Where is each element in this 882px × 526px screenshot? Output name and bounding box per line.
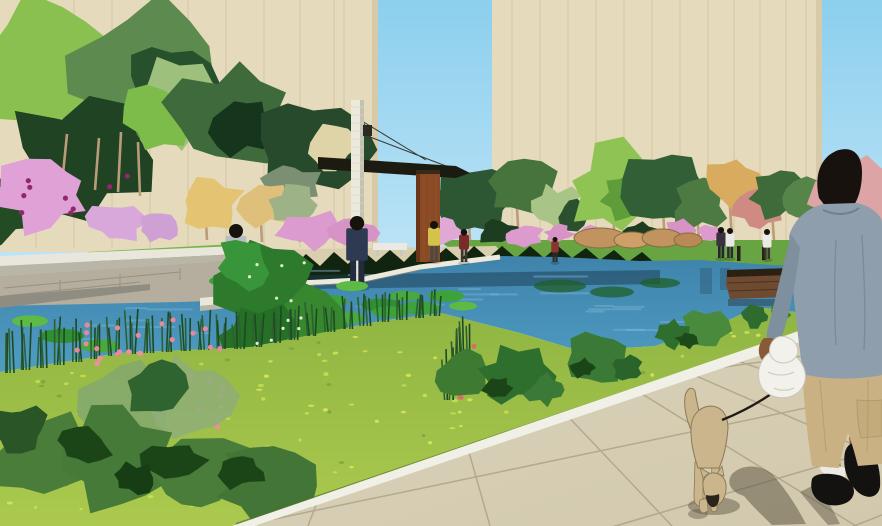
flower-dot: [125, 173, 130, 178]
flower-dot: [472, 344, 477, 349]
reflection-streak: [700, 268, 712, 294]
figure-head: [718, 227, 724, 233]
grass-fleck: [731, 335, 736, 338]
flower-dot: [281, 327, 284, 330]
bench-leg: [376, 250, 379, 256]
flower-dot: [297, 327, 300, 330]
grass-fleck: [268, 360, 273, 362]
grass-fleck: [401, 411, 406, 413]
grass-fleck: [332, 352, 337, 355]
grass-fleck: [70, 372, 74, 374]
grass-fleck: [756, 334, 761, 337]
figure-torso: [346, 228, 368, 260]
figure-shadow: [427, 260, 441, 264]
grass-fleck: [7, 501, 13, 504]
rust-column-shade: [416, 172, 420, 262]
grass-fleck: [256, 389, 262, 391]
flower-dot: [459, 395, 464, 400]
reed-blade: [399, 300, 400, 320]
figure-torso: [716, 232, 725, 246]
reed-blade: [331, 307, 332, 332]
figure-head: [727, 228, 733, 234]
flower-dot: [94, 361, 100, 367]
lilypad-far: [640, 278, 680, 288]
grass-fleck: [326, 383, 331, 386]
reed-blade: [216, 314, 217, 349]
flower-dot: [303, 261, 306, 264]
flower-dot: [280, 264, 283, 267]
grass-fleck: [349, 404, 354, 406]
grass-fleck: [423, 394, 427, 397]
grass-fleck: [35, 380, 40, 383]
grass-fleck: [39, 385, 44, 387]
grass-fleck: [323, 408, 328, 411]
grass-fleck: [80, 375, 86, 378]
flower-dot: [21, 193, 26, 198]
water-highlight: [540, 292, 590, 294]
flower-dot: [94, 346, 99, 351]
grass-fleck: [363, 350, 368, 352]
grass-fleck: [459, 425, 463, 427]
grass-fleck: [458, 411, 462, 414]
flower-dot: [97, 356, 103, 362]
flower-dot: [84, 330, 89, 335]
flower-dot: [117, 349, 122, 354]
water-highlight: [626, 329, 661, 331]
flower-dot: [137, 351, 143, 357]
rust-column-cap: [416, 170, 440, 174]
grass-fleck: [375, 420, 379, 423]
grass-fleck: [433, 357, 437, 360]
grass-fleck: [339, 461, 345, 464]
building-left-edge: [372, 0, 378, 252]
pergola-lamp: [363, 125, 372, 136]
flower-dot: [208, 345, 213, 350]
flower-dot: [75, 347, 80, 352]
grass-fleck: [261, 397, 265, 400]
grass-fleck: [349, 466, 353, 469]
flower-dot: [115, 325, 120, 330]
flower-dot: [26, 178, 31, 183]
reed-blade: [363, 294, 364, 326]
grass-fleck: [397, 351, 402, 353]
grass-fleck: [333, 471, 338, 473]
grass-fleck: [57, 395, 62, 398]
reed-blade: [334, 310, 335, 332]
water-highlight: [490, 293, 518, 295]
man-shirt: [789, 203, 882, 379]
dog-body: [691, 406, 728, 468]
grass-fleck: [299, 438, 302, 441]
grass-fleck: [199, 363, 204, 366]
reed-blade: [253, 314, 254, 347]
grass-fleck: [317, 353, 321, 356]
reed-blade: [276, 313, 277, 343]
flower-dot: [107, 184, 112, 189]
reed-blade: [94, 328, 95, 359]
water-highlight: [585, 311, 604, 313]
grass-fleck: [450, 412, 456, 414]
reed-blade: [291, 309, 292, 340]
grass-fleck: [324, 372, 329, 375]
flower-dot: [19, 210, 24, 215]
reed-blade: [422, 296, 423, 318]
flower-dot: [289, 299, 292, 302]
grass-fleck: [401, 384, 406, 387]
reed-blade: [225, 317, 226, 349]
reed-blade: [46, 330, 47, 368]
flower-dot: [248, 275, 251, 278]
flower-dot: [255, 263, 258, 266]
flower-dot: [203, 326, 208, 331]
grass-fleck: [41, 380, 46, 384]
grass-fleck: [504, 410, 509, 413]
reed-blade: [152, 316, 153, 353]
figure-shadow: [551, 261, 560, 265]
lilypad-far: [590, 287, 634, 298]
grass-fleck: [681, 355, 685, 358]
figure-torso: [551, 241, 559, 252]
figure-shadow: [725, 257, 736, 261]
grass-fleck: [64, 382, 69, 385]
grass-fleck: [79, 508, 82, 510]
lilypad-far: [534, 280, 586, 293]
figure-torso: [428, 228, 440, 246]
water-highlight: [594, 305, 614, 307]
figure-head: [553, 237, 558, 242]
bollard: [737, 246, 741, 261]
figure-head: [764, 229, 770, 235]
flower-dot: [170, 337, 175, 342]
flower-dot: [270, 339, 273, 342]
flower-dot: [126, 349, 132, 355]
rendered-scene: [0, 0, 882, 526]
figure-shadow: [762, 258, 773, 262]
grass-fleck: [317, 341, 321, 344]
flower-dot: [286, 319, 289, 322]
grass-fleck: [258, 384, 264, 387]
flower-dot: [27, 185, 32, 190]
water-highlight: [613, 306, 645, 308]
grass-fleck: [308, 404, 314, 407]
flower-dot: [71, 206, 76, 211]
figure-head: [229, 224, 243, 238]
grass-fleck: [422, 434, 426, 437]
flower-dot: [83, 341, 88, 346]
flower-dot: [85, 322, 90, 327]
lilypad: [12, 315, 48, 327]
reed-blade: [185, 318, 186, 351]
flower-dot: [136, 333, 141, 338]
water-highlight: [533, 275, 588, 277]
grass-fleck: [744, 331, 750, 334]
lilypad: [449, 302, 477, 311]
rock: [674, 233, 702, 247]
reed-blade: [294, 309, 295, 340]
grass-fleck: [289, 347, 295, 350]
flower-dot: [159, 321, 164, 326]
grass-fleck: [147, 495, 153, 498]
grass-fleck: [449, 427, 455, 429]
flower-dot: [170, 317, 175, 322]
figure-torso: [459, 235, 469, 250]
grass-fleck: [264, 374, 269, 377]
grass-fleck: [406, 374, 412, 377]
flower-dot: [63, 196, 68, 201]
water-highlight: [458, 288, 481, 290]
bench-leg: [400, 250, 403, 256]
flower-dot: [275, 297, 278, 300]
reed-blade: [280, 306, 281, 343]
grass-fleck: [305, 412, 310, 415]
flower-dot: [299, 316, 302, 319]
figure-head: [461, 229, 468, 236]
grass-fleck: [428, 441, 432, 444]
figure-torso: [763, 234, 772, 248]
flower-dot: [256, 342, 259, 345]
figure-torso: [726, 233, 735, 247]
grass-fleck: [467, 398, 473, 401]
flower-dot: [190, 330, 195, 335]
water-highlight: [147, 308, 193, 310]
lilypad: [389, 291, 421, 301]
grass-fleck: [34, 506, 37, 509]
grass-fleck: [650, 373, 654, 377]
figure-head: [430, 221, 438, 229]
figure-head: [350, 216, 364, 230]
grass-fleck: [327, 410, 331, 414]
water-highlight: [588, 308, 642, 310]
lilypad: [336, 281, 368, 291]
reed-blade: [237, 312, 238, 349]
figure-shadow: [458, 261, 470, 265]
grass-fleck: [225, 358, 230, 361]
shorts-cargo-pocket: [857, 400, 882, 438]
bench-seat: [373, 243, 407, 250]
grass-fleck: [352, 336, 358, 338]
flower-dot: [217, 346, 222, 351]
grass-fleck: [322, 360, 328, 363]
water-highlight: [125, 307, 147, 309]
